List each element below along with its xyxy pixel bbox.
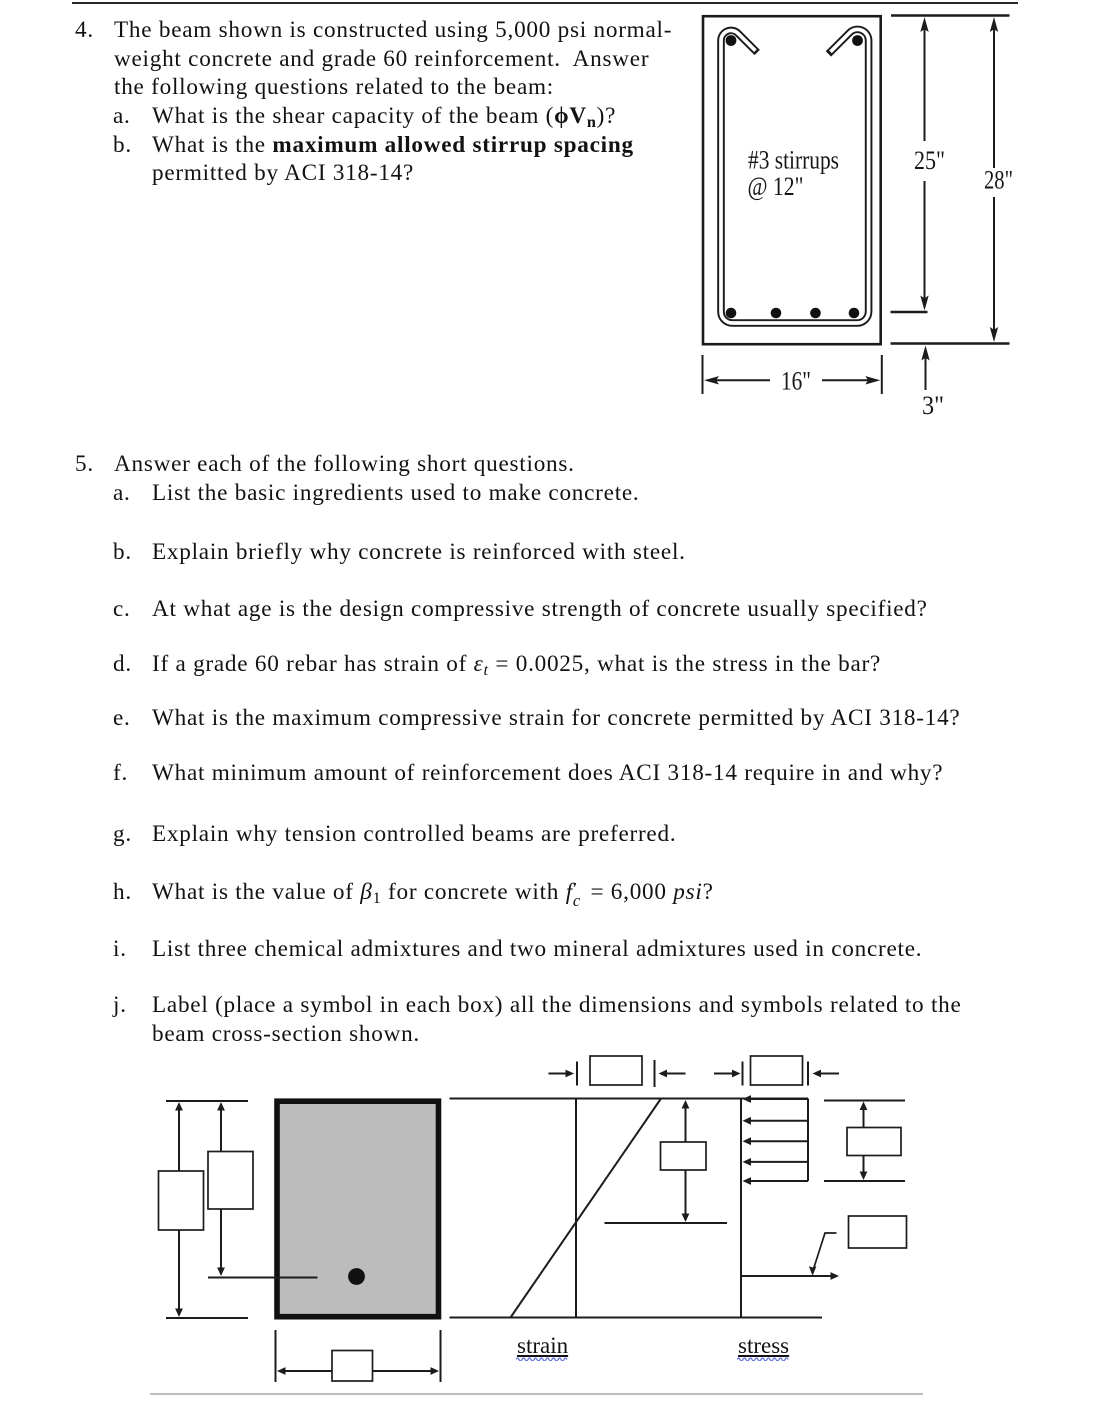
svg-text:3": 3" <box>922 391 944 420</box>
svg-text:@ 12": @ 12" <box>748 172 804 201</box>
svg-text:28": 28" <box>984 166 1013 195</box>
svg-text:#3 stirrups: #3 stirrups <box>748 146 839 175</box>
svg-text:25": 25" <box>914 146 945 175</box>
svg-text:16": 16" <box>781 367 811 396</box>
